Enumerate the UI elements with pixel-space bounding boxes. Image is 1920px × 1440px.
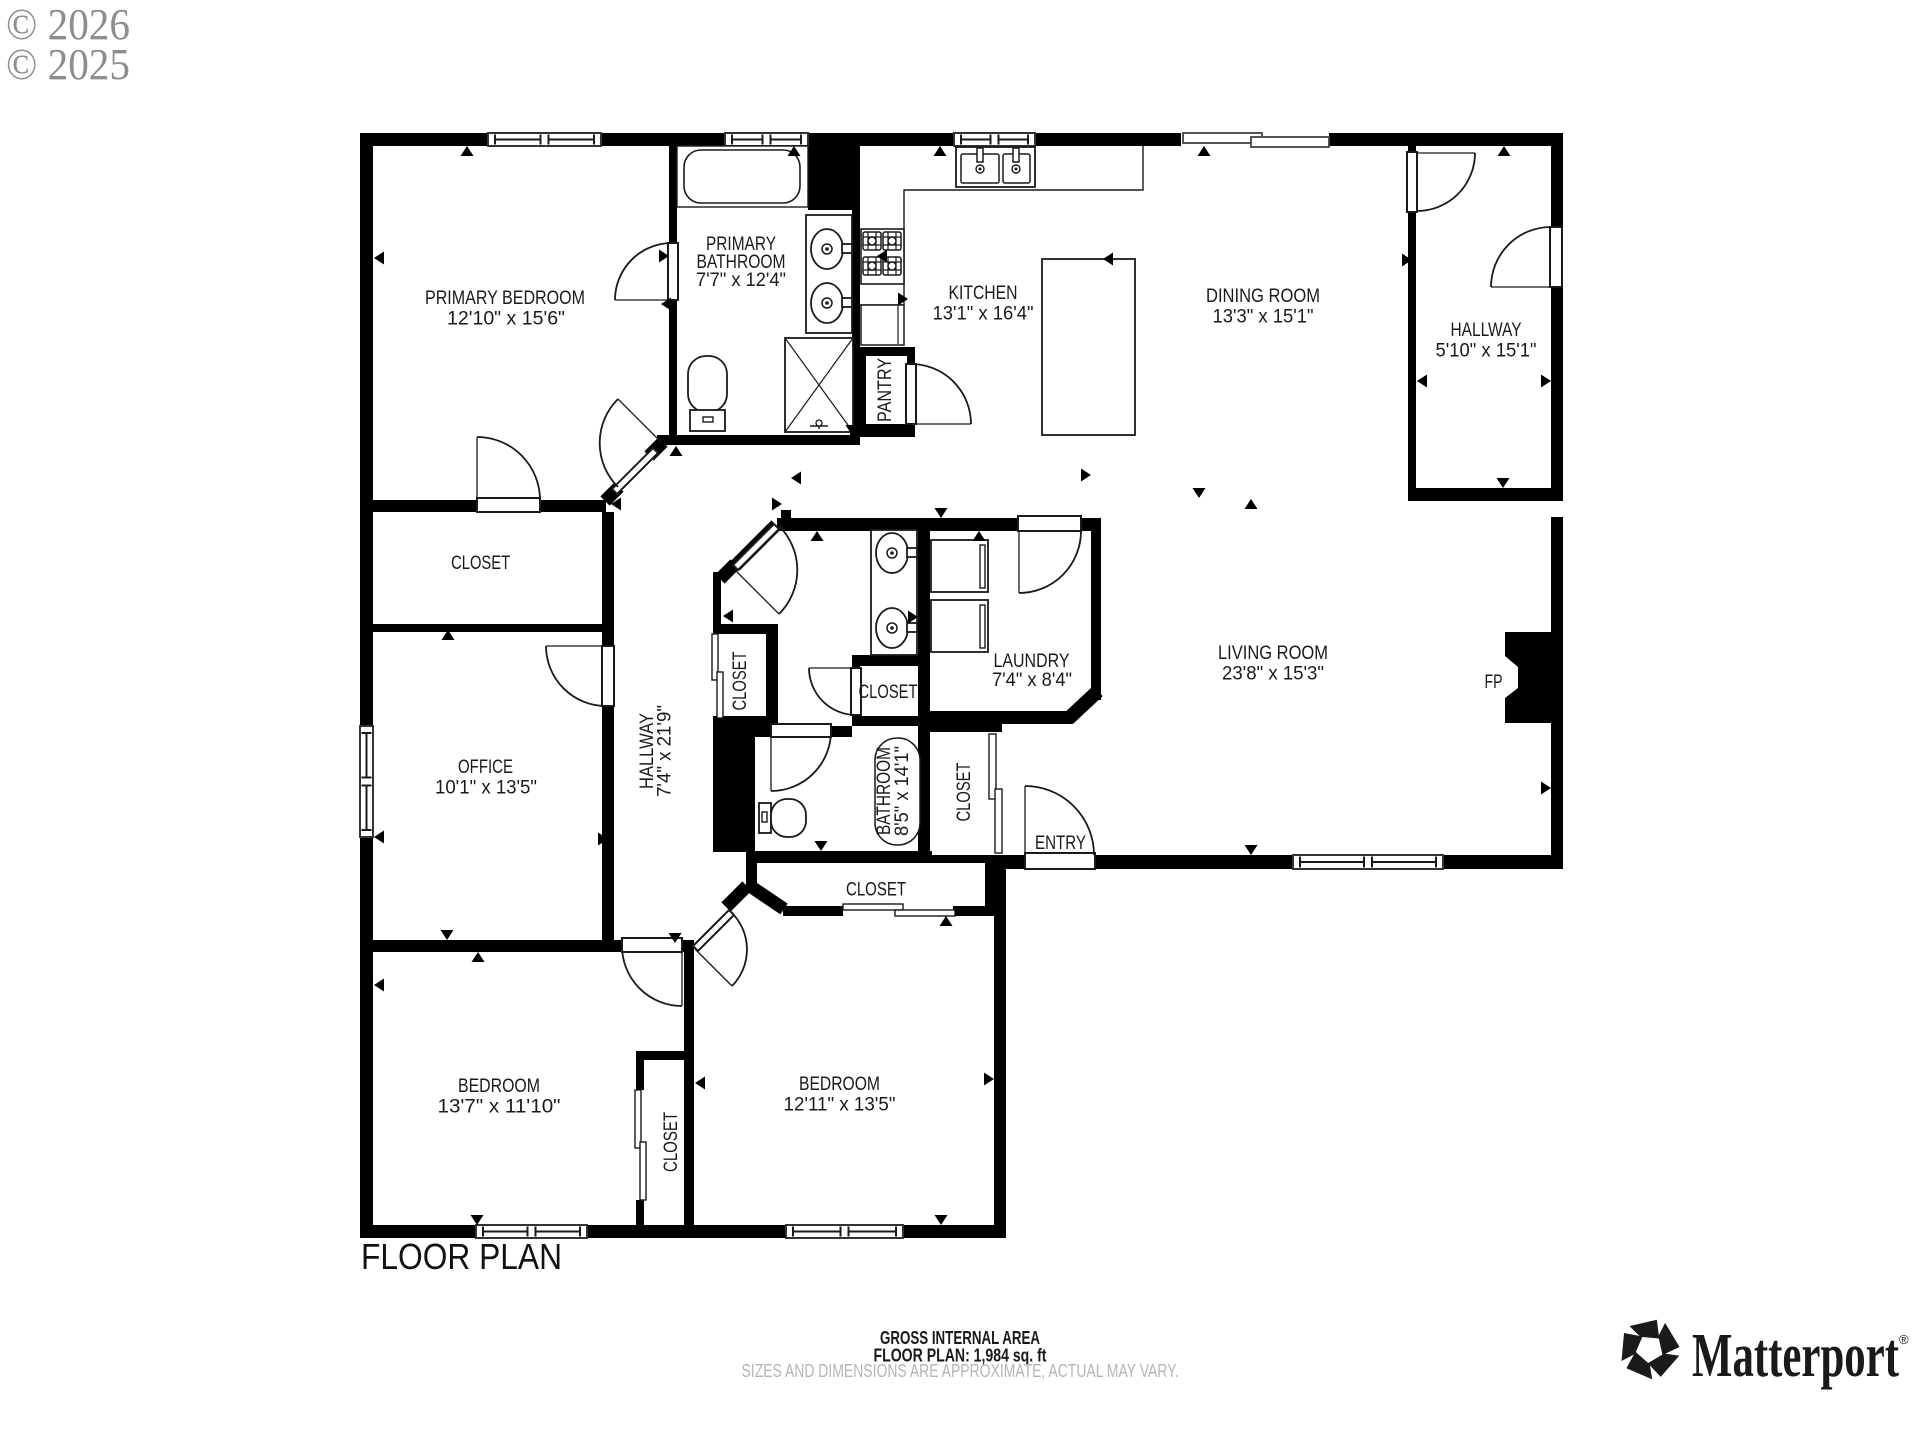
svg-text:CLOSET: CLOSET [954,762,975,821]
svg-text:Matterport: Matterport [1692,1322,1899,1390]
svg-text:10'1" x 13'5": 10'1" x 13'5" [435,777,537,798]
svg-text:ENTRY: ENTRY [1035,833,1086,854]
svg-text:FLOOR PLAN: FLOOR PLAN [361,1236,562,1277]
svg-text:®: ® [1899,1332,1909,1347]
svg-text:BEDROOM: BEDROOM [799,1074,880,1095]
svg-text:13'3" x 15'1": 13'3" x 15'1" [1213,306,1314,327]
svg-text:OFFICE: OFFICE [458,757,513,778]
svg-text:13'1" x 16'4": 13'1" x 16'4" [933,303,1034,324]
svg-text:5'10" x 15'1": 5'10" x 15'1" [1436,340,1537,361]
svg-text:FP: FP [1485,672,1503,693]
svg-text:LAUNDRY: LAUNDRY [994,651,1070,672]
svg-text:CLOSET: CLOSET [661,1112,682,1172]
svg-text:HALLWAY: HALLWAY [1451,320,1522,341]
svg-text:KITCHEN: KITCHEN [949,283,1018,304]
svg-text:LIVING ROOM: LIVING ROOM [1218,643,1328,664]
svg-text:CLOSET: CLOSET [846,880,906,901]
svg-text:© 2025: © 2025 [6,40,130,89]
svg-text:13'7" x 11'10": 13'7" x 11'10" [438,1096,561,1117]
svg-text:7'4" x 21'9": 7'4" x 21'9" [655,705,676,797]
svg-text:12'11" x 13'5": 12'11" x 13'5" [784,1094,896,1115]
svg-text:CLOSET: CLOSET [730,651,751,710]
svg-text:CLOSET: CLOSET [451,553,510,574]
svg-text:7'7" x 12'4": 7'7" x 12'4" [696,270,786,291]
svg-text:PANTRY: PANTRY [875,358,896,422]
svg-text:PRIMARY BEDROOM: PRIMARY BEDROOM [425,288,585,309]
svg-text:8'5" x 14'1": 8'5" x 14'1" [892,746,913,836]
svg-text:23'8" x 15'3": 23'8" x 15'3" [1222,663,1324,684]
svg-text:SIZES AND DIMENSIONS ARE APPRO: SIZES AND DIMENSIONS ARE APPROXIMATE, AC… [742,1361,1179,1381]
svg-text:7'4" x 8'4": 7'4" x 8'4" [992,670,1072,691]
svg-text:DINING ROOM: DINING ROOM [1206,286,1320,307]
svg-text:CLOSET: CLOSET [859,682,918,703]
svg-text:12'10" x 15'6": 12'10" x 15'6" [447,308,565,329]
svg-text:BEDROOM: BEDROOM [458,1076,540,1097]
